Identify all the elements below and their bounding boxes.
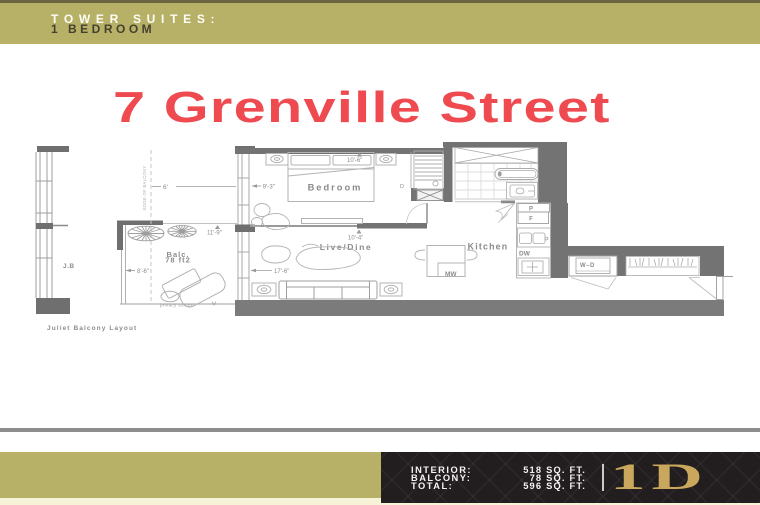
svg-text:Kitchen: Kitchen [468, 242, 509, 252]
svg-text:Juliet Balcony Layout: Juliet Balcony Layout [47, 325, 137, 332]
svg-text:10'-4": 10'-4" [348, 236, 363, 242]
svg-text:6': 6' [163, 184, 168, 191]
svg-text:DW: DW [519, 251, 531, 258]
svg-text:Bedroom: Bedroom [308, 183, 363, 193]
svg-text:8'-6": 8'-6" [137, 269, 149, 275]
svg-text:10'-6": 10'-6" [347, 158, 362, 164]
svg-text:J.B: J.B [63, 263, 75, 270]
svg-text:privacy screen: privacy screen [160, 303, 194, 308]
svg-text:78 ft2: 78 ft2 [165, 256, 191, 265]
svg-text:9'-3": 9'-3" [263, 184, 276, 191]
svg-text:MW: MW [445, 271, 457, 278]
svg-text:17'-6": 17'-6" [274, 269, 289, 275]
svg-text:11'-9": 11'-9" [207, 231, 222, 237]
svg-text:F: F [529, 217, 533, 223]
svg-text:W–D: W–D [580, 263, 595, 269]
svg-text:EDGE OF BALCONY: EDGE OF BALCONY [142, 165, 147, 210]
svg-text:D: D [400, 184, 404, 190]
